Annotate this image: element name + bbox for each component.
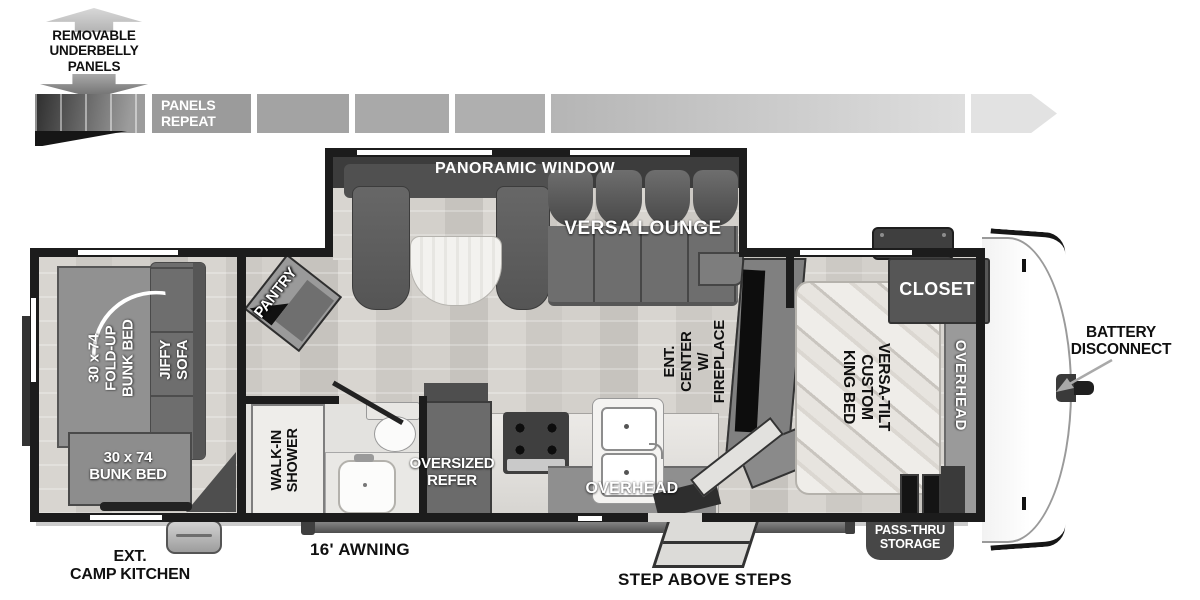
bathroom-faucet-icon (354, 454, 374, 462)
ext-camp-kitchen-griddle (166, 520, 222, 554)
body-bottom-wall (30, 513, 985, 522)
underbelly-panel-arrow-segment (971, 94, 1057, 133)
panels-repeat-segment: PANELS REPEAT (152, 94, 251, 133)
step-above-steps-label: STEP ABOVE STEPS (615, 568, 795, 592)
window (578, 516, 602, 521)
bathroom-top-wall (237, 396, 339, 404)
pass-thru-door (922, 474, 941, 516)
cap-vent-tick (1022, 259, 1026, 272)
window (90, 515, 162, 520)
griddle-line (176, 534, 212, 537)
cap-rim-bottom (989, 524, 1066, 550)
lounge-cushion (596, 170, 641, 226)
lounge-back-cushions (548, 170, 738, 226)
awning-bar (308, 522, 848, 533)
slideout-right-wall (739, 148, 747, 257)
underbelly-panel-segment (551, 94, 965, 133)
body-right-wall (976, 248, 985, 522)
bathroom-right-wall (419, 396, 427, 520)
battery-arrow-icon (1050, 352, 1120, 400)
window (570, 150, 690, 155)
pass-thru-door (900, 474, 919, 516)
underbelly-panel-segment (257, 94, 349, 133)
underbelly-panel-segment (355, 94, 449, 133)
refrigerator-body (424, 401, 492, 517)
bedroom-wall-stub (786, 252, 794, 308)
bedroom-step-block (941, 466, 965, 514)
faucet-icon (649, 443, 663, 459)
bathroom-sink (338, 460, 396, 514)
exterior-steps (652, 518, 760, 568)
sink-drain (624, 470, 629, 475)
underbelly-panel-segment (455, 94, 545, 133)
awning-label: 16' AWNING (290, 538, 430, 562)
refrigerator (424, 383, 488, 401)
cap-vent-tick (1022, 497, 1026, 510)
window (78, 250, 178, 255)
lounge-cushion (548, 170, 593, 226)
underbelly-panel-segment (35, 94, 145, 133)
window (357, 150, 492, 155)
ent-overhead-cabinet (698, 252, 744, 286)
slideout-left-wall (325, 148, 333, 257)
panel-peel-shadow (35, 131, 127, 146)
body-left-wall (30, 248, 39, 522)
bunk-bed (68, 432, 192, 506)
lounge-cushion (645, 170, 690, 226)
underbelly-label: REMOVABLE UNDERBELLY PANELS (36, 28, 152, 74)
dinette-bench-left (352, 186, 410, 310)
rv-floorplan-diagram: REMOVABLE UNDERBELLY PANELS PANELS REPEA… (0, 0, 1200, 600)
bathroom-sink-drain (363, 483, 367, 487)
sink-bowl (601, 453, 657, 497)
sink-drain (624, 424, 629, 429)
bunk-mat (100, 502, 192, 511)
kitchen-sink (592, 398, 664, 504)
stove (503, 412, 569, 474)
bunkroom-divider-wall (237, 252, 246, 518)
lounge-cushion (693, 170, 738, 226)
step-divider (663, 541, 750, 544)
window (31, 298, 36, 382)
roof-box-dot (880, 233, 884, 237)
roof-box-dot (942, 233, 946, 237)
dinette-bench-right (496, 186, 550, 310)
closet (888, 258, 990, 324)
up-arrow-icon (46, 8, 142, 32)
entry-door-threshold (648, 513, 702, 522)
window (800, 250, 912, 255)
walk-in-shower (251, 404, 325, 520)
rear-trim (22, 316, 30, 446)
